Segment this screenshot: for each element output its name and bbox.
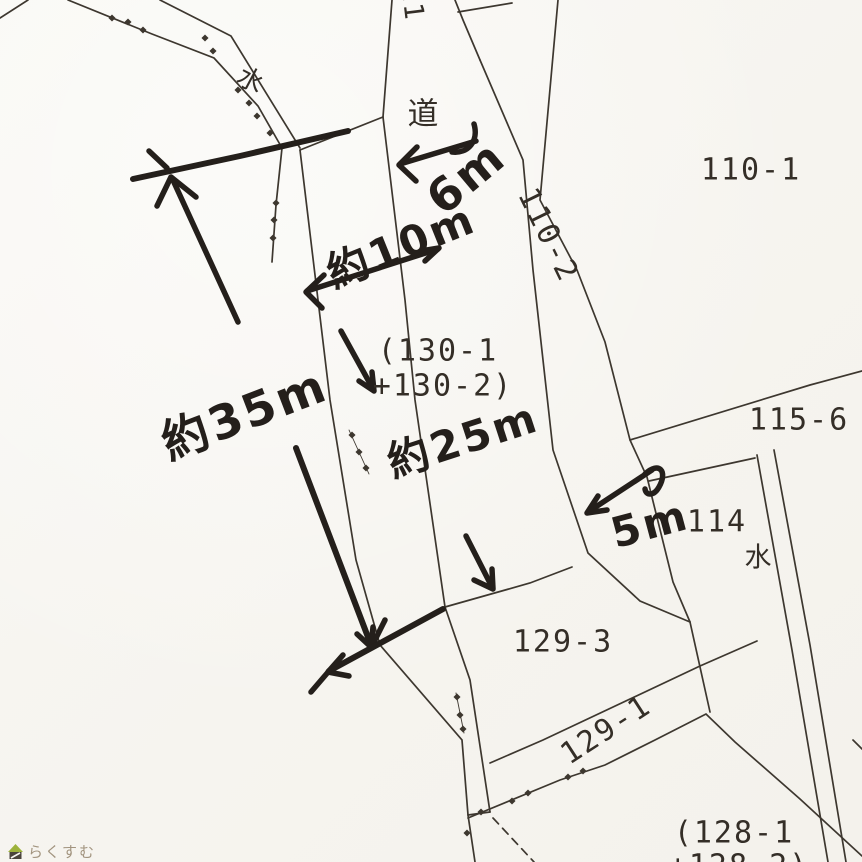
hand-arrow-10m-head-left xyxy=(306,275,324,308)
survey-dot xyxy=(453,693,460,700)
survey-dot xyxy=(355,448,362,455)
survey-dot xyxy=(139,26,146,33)
survey-dot xyxy=(209,47,216,54)
hand-stroke-north-boundary xyxy=(133,131,348,179)
boundary-line-upper-left xyxy=(160,0,300,148)
cadastral-map-canvas: 道110-1110-2(130-1+130-2)115-6114水水129-31… xyxy=(0,0,862,862)
survey-dot xyxy=(564,773,571,780)
parcel-115-6-label: 115-6 xyxy=(749,403,849,438)
hand-arrow-35m-shaft xyxy=(296,448,371,645)
road-branch-tick xyxy=(458,3,512,12)
strip-tip-line xyxy=(690,622,710,712)
survey-dot xyxy=(524,789,531,796)
water-channel-east-edge xyxy=(774,450,846,862)
survey-dot xyxy=(270,216,277,223)
parcel-129-3-north-edge xyxy=(445,567,572,607)
parcel-114-label: 114 xyxy=(687,505,747,540)
road-left-edge xyxy=(383,0,392,117)
survey-dot xyxy=(362,464,369,471)
parcel-129-1-south-edge xyxy=(468,714,862,856)
logo-text: らくすむ xyxy=(28,841,96,862)
survey-dot xyxy=(348,431,355,438)
water-channel-line-top-left xyxy=(68,0,282,262)
survey-dot xyxy=(269,234,276,241)
hand-arrow-upleft-flourish xyxy=(149,151,167,168)
parcel-129-3-label: 129-3 xyxy=(513,625,613,660)
water-label-right-label: 水 xyxy=(745,536,774,575)
survey-dot xyxy=(253,112,260,119)
strip-parcel-east-edge-lower xyxy=(445,607,490,812)
hand-arrow-upleft-shaft xyxy=(172,178,238,322)
survey-dot xyxy=(456,711,463,718)
road-label-label: 道 xyxy=(408,89,441,134)
water-channel-west-edge xyxy=(757,455,828,862)
dashed-boundary-bottom xyxy=(493,818,534,862)
parcel-130-line1-label: (130-1 xyxy=(378,334,498,369)
parcel-128-line2-label: +128-2) xyxy=(669,849,809,862)
survey-dot xyxy=(108,14,115,21)
parcel-128-line1-label: (128-1 xyxy=(674,816,794,851)
cutoff-label-top-label: 11 xyxy=(394,0,429,23)
parcel-110-1-label: 110-1 xyxy=(701,153,801,188)
survey-dot xyxy=(201,34,208,41)
corner-boundary-line xyxy=(0,0,28,18)
survey-dot xyxy=(459,725,466,732)
survey-dot xyxy=(245,99,252,106)
survey-dot xyxy=(272,199,279,206)
hand-arrow-south-tail xyxy=(311,671,329,692)
logo: らくすむ xyxy=(7,841,96,862)
corner-boundary-line-right xyxy=(853,740,862,749)
house-icon xyxy=(7,843,24,860)
